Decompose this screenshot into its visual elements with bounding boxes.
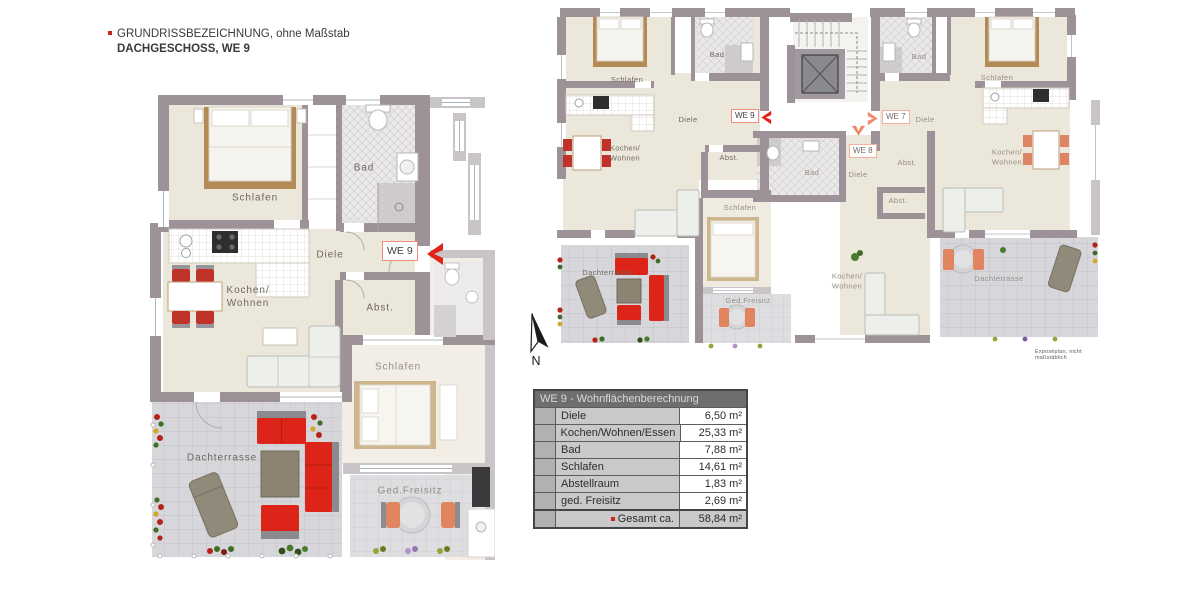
ov-arrow-down-icon: [851, 124, 866, 138]
north-label: N: [514, 354, 558, 368]
room-label-diele: Diele: [316, 249, 343, 262]
table-total-row: Gesamt ca. 58,84 m²: [535, 509, 746, 527]
arrow-left-icon: [423, 242, 446, 266]
row-label: ged. Freisitz: [556, 493, 680, 509]
ov-label-diele-we9: Diele: [678, 115, 697, 125]
ov-label-abst-we7: Abst.: [897, 158, 916, 168]
neighbour-bedroom: [354, 381, 457, 449]
ov-badge-we8: WE 8: [849, 144, 877, 158]
ov-label-kochen-we7: Kochen/ Wohnen: [992, 147, 1022, 167]
row-marker-cell: [535, 511, 556, 527]
row-value: 14,61 m²: [680, 459, 746, 475]
ov-label-diele-we8: Diele: [848, 170, 867, 180]
ov-arrow-left-icon: [759, 110, 773, 125]
row-label: Abstellraum: [556, 476, 680, 492]
area-table: WE 9 - Wohnflächenberechnung Diele 6,50 …: [533, 389, 748, 529]
red-bullet-icon: [108, 31, 112, 35]
legend-line1: GRUNDRISSBEZEICHNUNG, ohne Maßstab: [108, 27, 350, 42]
table-row: Bad 7,88 m²: [535, 441, 746, 458]
legend-text: GRUNDRISSBEZEICHNUNG, ohne Maßstab: [117, 28, 350, 40]
ov-label-schlafen-we9: Schlafen: [611, 75, 643, 85]
overview-floorplan: Schlafen Bad Diele Kochen/ Wohnen Abst. …: [555, 5, 1105, 360]
detail-floorplan-we9: Schlafen Bad Diele Kochen/ Wohnen Abst. …: [150, 95, 495, 560]
ov-label-abst-we9: Abst.: [719, 153, 738, 163]
ov-label-bad-we8: Bad: [805, 168, 820, 178]
detail-plan-drawing: [150, 95, 495, 560]
table-row: Schlafen 14,61 m²: [535, 458, 746, 475]
room-label-ged-freisitz: Ged.Freisitz: [378, 485, 443, 498]
row-label: Diele: [556, 408, 680, 424]
ov-label-dachterrasse-we9: Dachterrasse: [582, 268, 631, 278]
row-value: 25,33 m²: [681, 425, 746, 441]
total-value: 58,84 m²: [680, 511, 746, 527]
ov-label-kochen-we9: Kochen/ Wohnen: [610, 143, 640, 163]
ov-label-bad-we9: Bad: [710, 50, 725, 60]
table-row: Diele 6,50 m²: [535, 407, 746, 424]
room-label-dachterrasse: Dachterrasse: [187, 452, 257, 465]
table-row: ged. Freisitz 2,69 m²: [535, 492, 746, 509]
ov-label-freisitz-we8: Ged.Freisitz: [725, 296, 770, 306]
row-label: Kochen/Wohnen/Essen: [556, 425, 682, 441]
row-value: 2,69 m²: [680, 493, 746, 509]
ov-label-bad-we7: Bad: [912, 52, 927, 62]
table-row: Abstellraum 1,83 m²: [535, 475, 746, 492]
row-marker-cell: [535, 493, 556, 509]
overview-plan-drawing: [555, 5, 1105, 360]
freisitz-furniture: [381, 497, 460, 533]
legend-title: DACHGESCHOSS, WE 9: [117, 42, 350, 57]
area-table-title: WE 9 - Wohnflächenberechnung: [535, 391, 746, 407]
row-marker-cell: [535, 425, 556, 441]
row-marker-cell: [535, 408, 556, 424]
red-bullet-icon: [611, 517, 615, 521]
row-label: Schlafen: [556, 459, 680, 475]
row-marker-cell: [535, 442, 556, 458]
north-compass: N: [514, 311, 558, 369]
room-label-schlafen: Schlafen: [232, 192, 278, 205]
ov-label-abst-we8: Abst.: [888, 196, 907, 206]
ov-arrow-right-icon: [866, 111, 880, 126]
row-label: Bad: [556, 442, 680, 458]
row-marker-cell: [535, 459, 556, 475]
legend: GRUNDRISSBEZEICHNUNG, ohne Maßstab DACHG…: [108, 27, 350, 57]
ov-badge-we9: WE 9: [731, 109, 759, 123]
bed-schlafen: [194, 107, 306, 189]
plan-disclaimer: Exposéplan, nicht maßstäblich: [1035, 349, 1105, 361]
north-arrow-icon: [515, 311, 557, 353]
ov-badge-we7: WE 7: [882, 110, 910, 124]
ov-label-kochen-we8: Kochen/ Wohnen: [832, 271, 862, 291]
row-marker-cell: [535, 476, 556, 492]
room-label-bad: Bad: [354, 162, 375, 175]
row-value: 6,50 m²: [680, 408, 746, 424]
ov-label-diele-we7: Diele: [915, 115, 934, 125]
floorplan-sheet: GRUNDRISSBEZEICHNUNG, ohne Maßstab DACHG…: [0, 0, 1200, 600]
row-value: 1,83 m²: [680, 476, 746, 492]
ov-label-schlafen-we8: Schlafen: [724, 203, 756, 213]
unit-badge-we9: WE 9: [382, 241, 418, 261]
ov-label-schlafen-we7: Schlafen: [981, 73, 1013, 83]
total-label: Gesamt ca.: [556, 511, 680, 527]
ov-label-dachterrasse-we7: Dachterrasse: [974, 274, 1023, 284]
table-row: Kochen/Wohnen/Essen 25,33 m²: [535, 424, 746, 441]
row-value: 7,88 m²: [680, 442, 746, 458]
room-label-schlafen-neighbour: Schlafen: [375, 361, 421, 374]
room-label-abstellraum: Abst.: [366, 302, 393, 315]
room-label-kochen-wohnen: Kochen/ Wohnen: [227, 284, 270, 310]
